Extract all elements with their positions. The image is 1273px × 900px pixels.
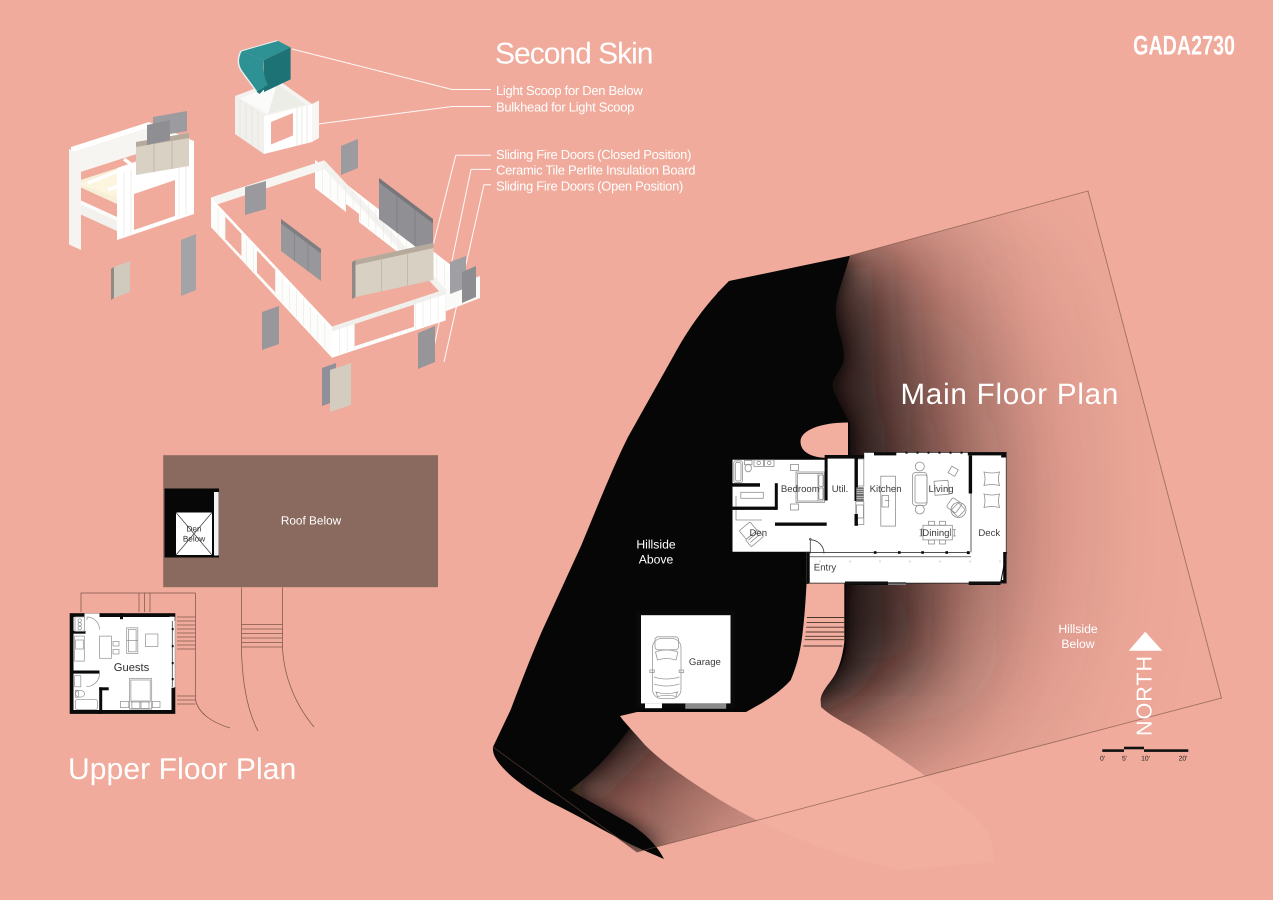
svg-text:Main Floor Plan: Main Floor Plan [901,378,1120,411]
svg-text:Below: Below [1061,637,1094,651]
svg-text:Hillside: Hillside [636,538,676,552]
svg-text:Util.: Util. [832,484,849,495]
svg-text:Entry: Entry [814,562,837,573]
svg-text:Dining: Dining [922,528,949,539]
svg-text:Below: Below [183,535,205,544]
svg-text:NORTH: NORTH [1133,655,1157,736]
svg-text:Second Skin: Second Skin [495,38,652,71]
svg-text:Light Scoop for Den Below: Light Scoop for Den Below [496,83,643,98]
svg-text:Upper Floor Plan: Upper Floor Plan [68,753,296,786]
svg-text:Hillside: Hillside [1058,622,1098,636]
svg-text:10': 10' [1141,756,1150,763]
svg-text:GADA2730: GADA2730 [1133,31,1235,61]
svg-text:Bedroom: Bedroom [781,484,820,495]
svg-text:Living: Living [929,484,954,495]
svg-text:Ceramic Tile Perlite Insulatio: Ceramic Tile Perlite Insulation Board [496,163,695,178]
svg-text:Kitchen: Kitchen [870,484,902,495]
svg-text:0': 0' [1100,756,1105,763]
svg-text:Den: Den [749,528,767,539]
svg-text:20': 20' [1179,756,1188,763]
svg-text:Guests: Guests [114,662,150,674]
svg-text:5': 5' [1122,756,1127,763]
svg-text:Garage: Garage [689,657,721,668]
svg-text:Above: Above [639,553,674,567]
svg-text:Deck: Deck [978,528,1000,539]
svg-text:Sliding Fire Doors (Open Posit: Sliding Fire Doors (Open Position) [496,179,683,194]
svg-text:Sliding Fire Doors (Closed Pos: Sliding Fire Doors (Closed Position) [496,147,691,162]
svg-text:Den: Den [186,525,201,534]
svg-text:Roof Below: Roof Below [281,514,342,528]
svg-text:Bulkhead for Light Scoop: Bulkhead for Light Scoop [496,100,634,115]
